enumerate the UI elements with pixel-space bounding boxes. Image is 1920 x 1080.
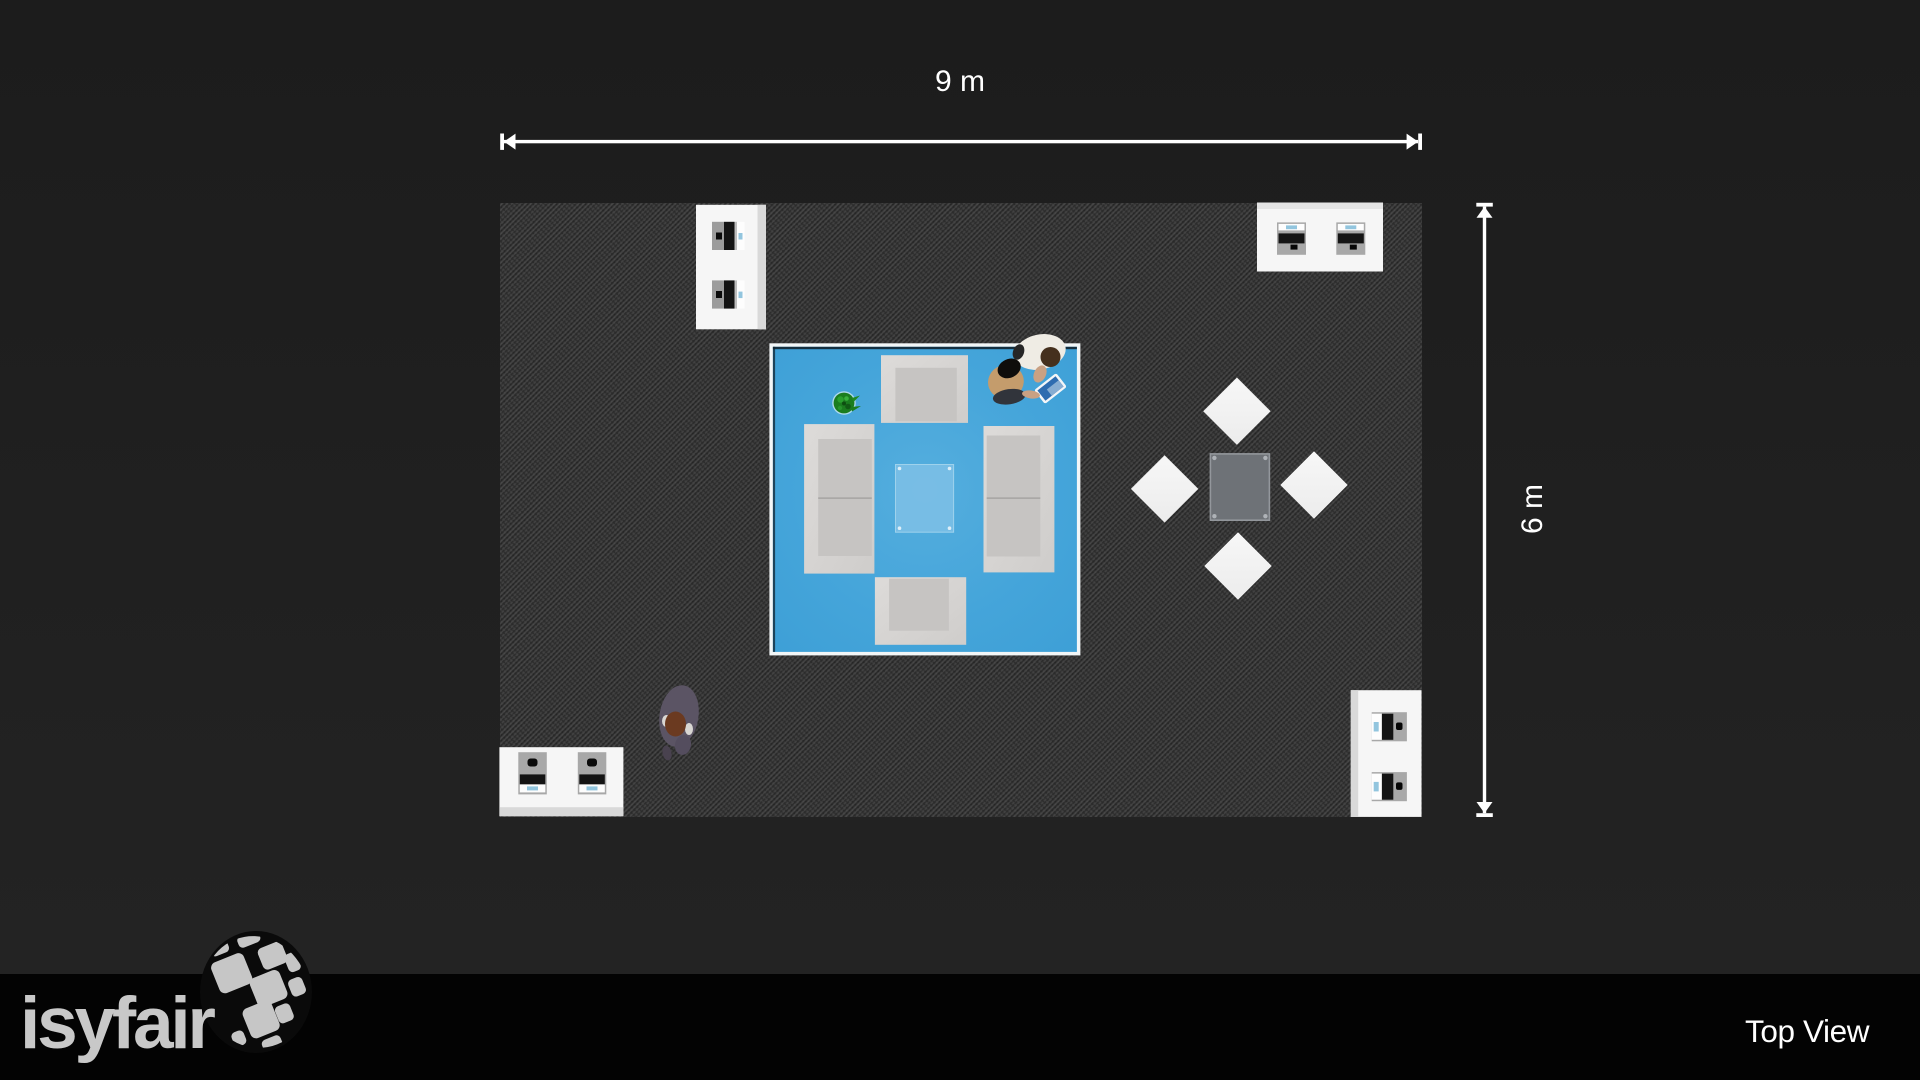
svg-text:9 m: 9 m bbox=[935, 65, 985, 98]
svg-text:isyfair: isyfair bbox=[20, 983, 215, 1064]
svg-text:6 m: 6 m bbox=[1516, 484, 1549, 534]
svg-text:Top View: Top View bbox=[1745, 1013, 1870, 1049]
